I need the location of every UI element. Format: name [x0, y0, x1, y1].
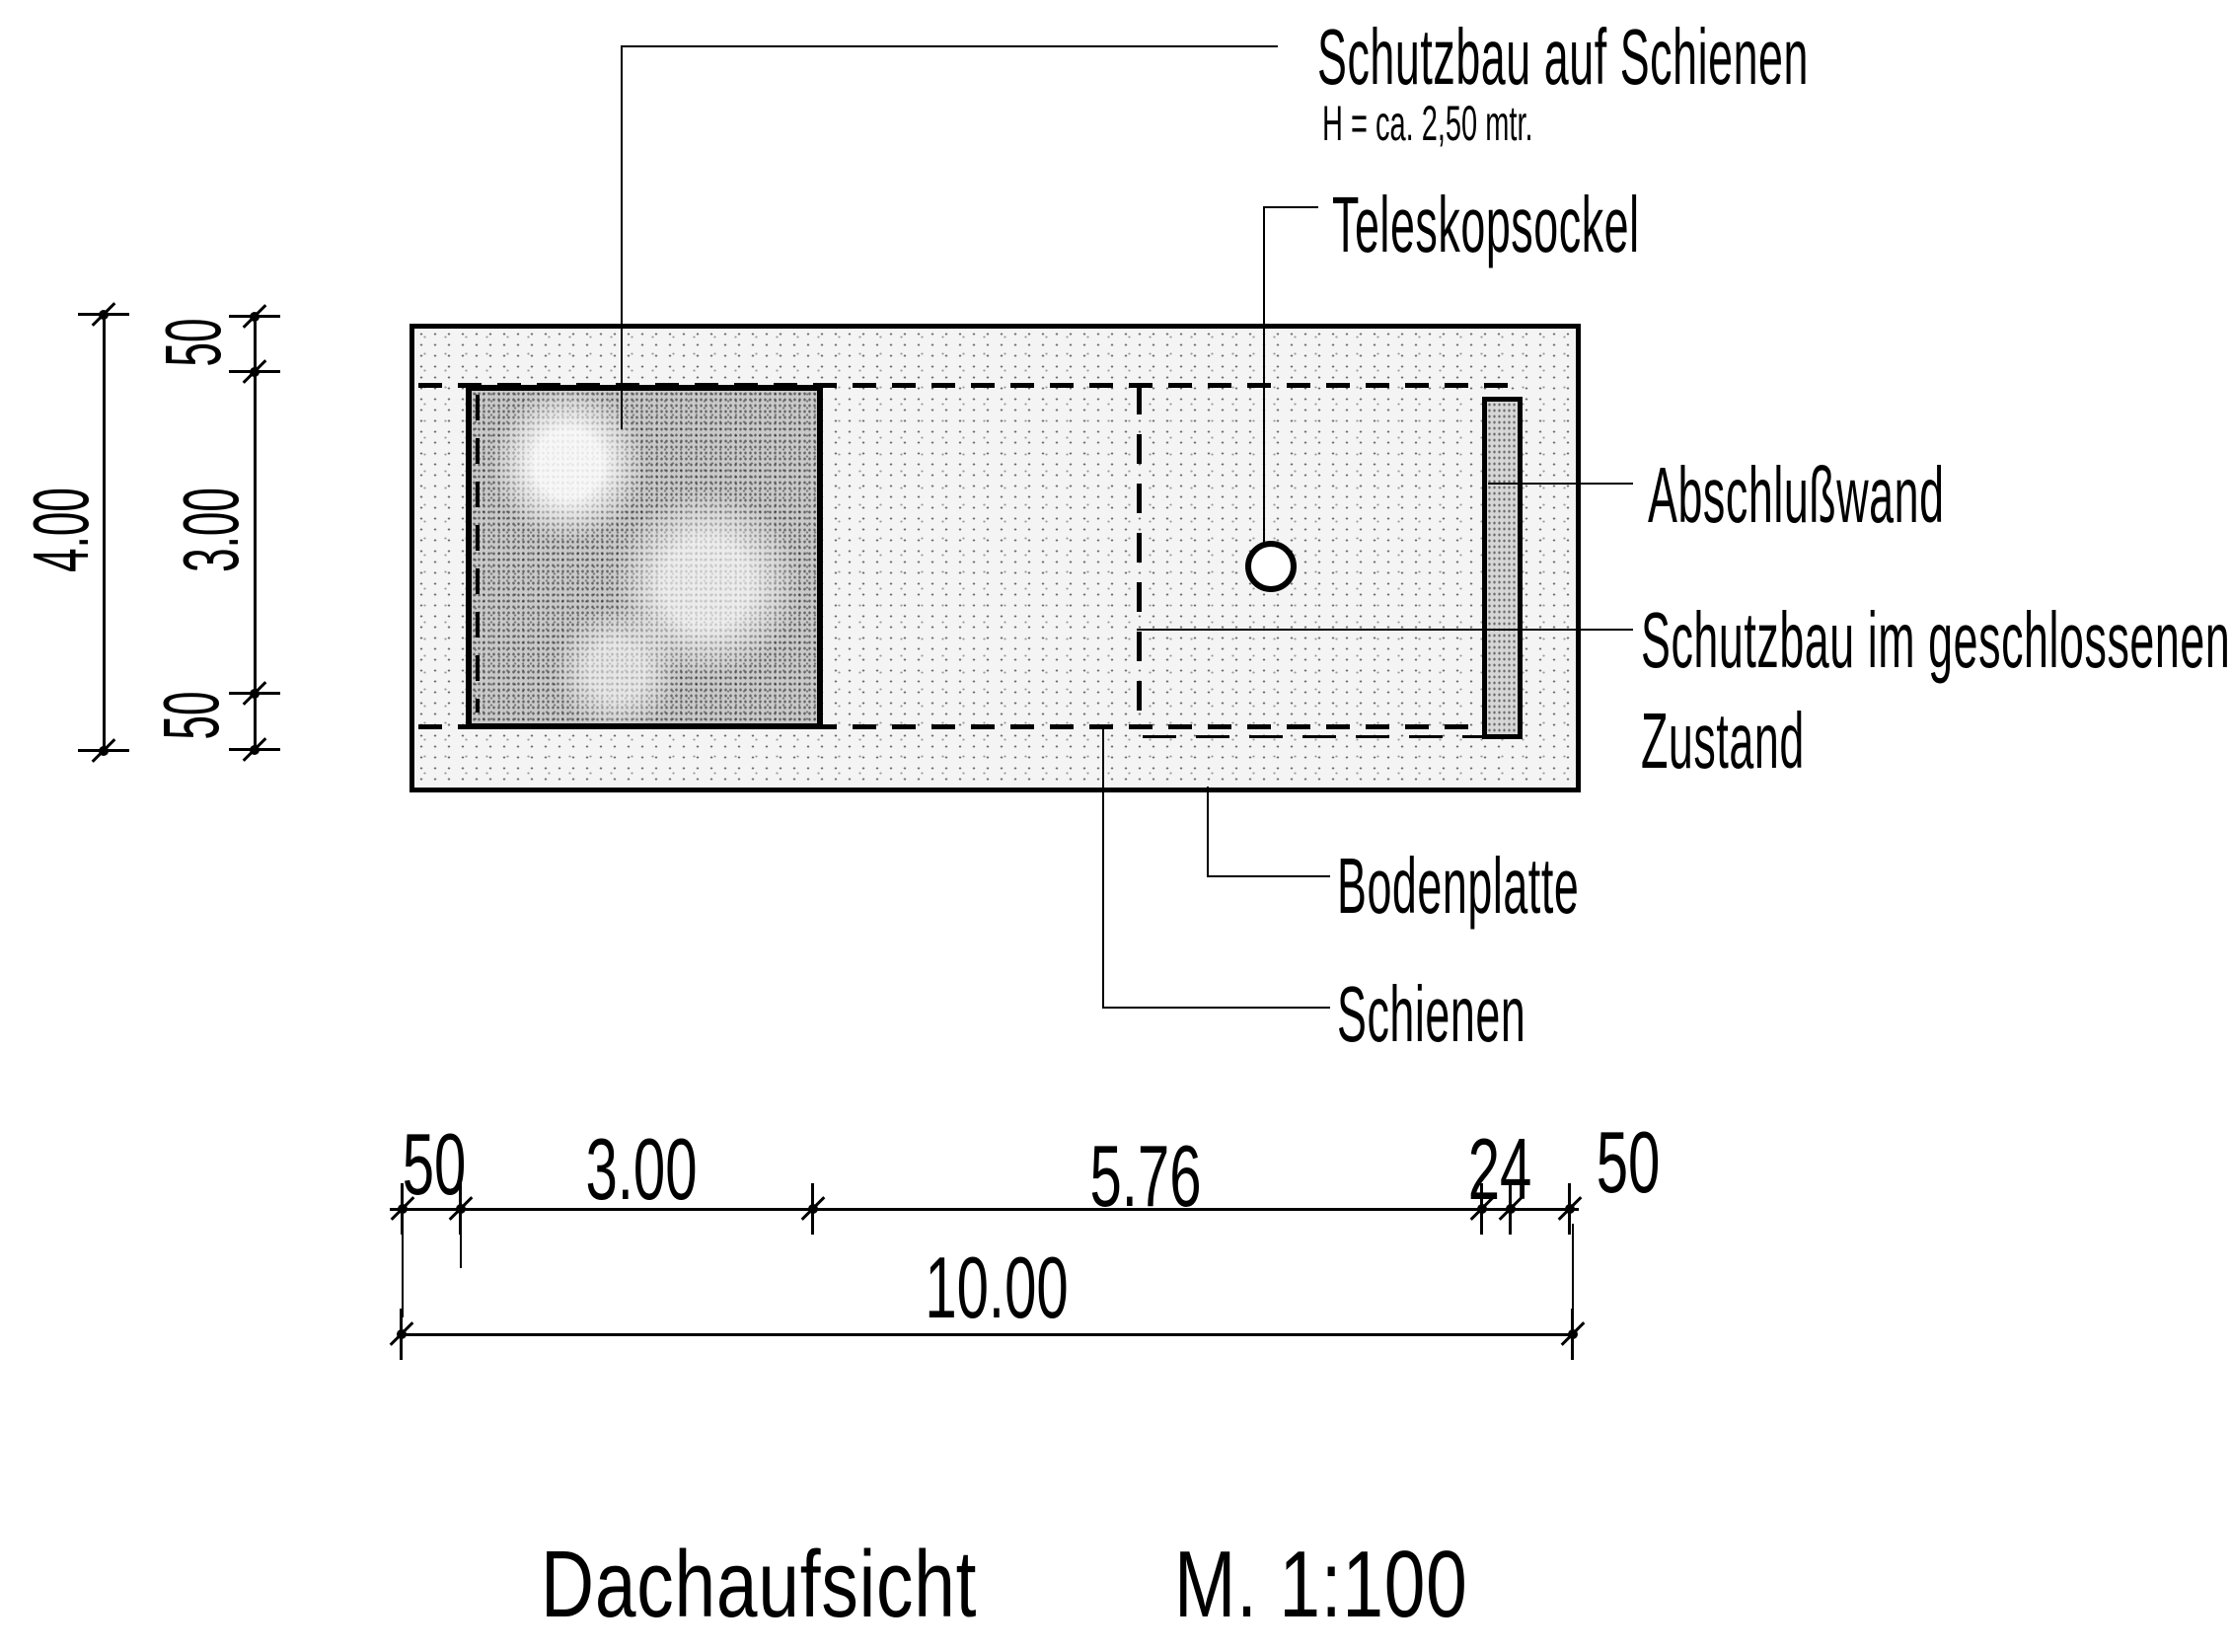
dim-value-horizontal-seg4: 24 — [1468, 1126, 1532, 1213]
leader-bodenplatte-horizontal — [1207, 875, 1330, 877]
closed-position-dashed-bottom — [1143, 735, 1522, 738]
leader-schutzbau-horizontal — [621, 45, 1278, 47]
leader-schienen-vertical — [1102, 726, 1104, 1009]
rail-line-bottom — [418, 724, 1522, 729]
dim-value-vertical-seg1: 50 — [154, 319, 233, 367]
teleskopsockel-circle — [1245, 541, 1297, 592]
extension-line — [1572, 1224, 1574, 1322]
label-abschlusswand: Abschlußwand — [1648, 456, 1945, 535]
drawing-scale: M. 1:100 — [1174, 1538, 1468, 1632]
label-schutzbau-geschlossen-line1: Schutzbau im geschlossenen — [1641, 590, 2230, 691]
dim-value-vertical-seg2: 3.00 — [172, 488, 251, 572]
drawing-title: Dachaufsicht — [541, 1538, 977, 1632]
leader-abschlusswand — [1488, 483, 1633, 485]
leader-schienen-horizontal — [1102, 1007, 1330, 1009]
schutzbau-square — [466, 385, 823, 729]
label-height-note: H = ca. 2,50 mtr. — [1322, 99, 1533, 148]
dim-value-horizontal-seg2: 3.00 — [585, 1126, 697, 1213]
label-schutzbau-geschlossen: Schutzbau im geschlossenen Zustand — [1641, 590, 2230, 792]
closed-position-dashed-edge — [1137, 385, 1142, 730]
label-schienen: Schienen — [1337, 975, 1525, 1054]
abschlusswand-bar — [1482, 397, 1523, 739]
extension-line — [402, 1224, 404, 1317]
technical-drawing-canvas: Schutzbau auf Schienen H = ca. 2,50 mtr.… — [0, 0, 2231, 1652]
leader-schutzbau-vertical — [621, 46, 623, 429]
dim-value-vertical-seg3: 50 — [152, 692, 231, 740]
label-schutzbau-auf-schienen: Schutzbau auf Schienen — [1317, 18, 1809, 97]
rail-line-top — [418, 383, 1522, 388]
dim-value-horizontal-total: 10.00 — [925, 1244, 1068, 1331]
label-schutzbau-geschlossen-line2: Zustand — [1641, 691, 2230, 791]
dim-value-horizontal-seg1: 50 — [403, 1121, 467, 1208]
label-bodenplatte: Bodenplatte — [1337, 847, 1579, 926]
schutzbau-inner-dashed-edge — [476, 395, 480, 713]
leader-bodenplatte-vertical — [1207, 787, 1209, 877]
leader-teleskopsockel-vertical — [1263, 206, 1265, 547]
dim-value-horizontal-seg3: 5.76 — [1089, 1133, 1201, 1220]
label-teleskopsockel: Teleskopsockel — [1332, 186, 1640, 264]
leader-schutzbau-geschlossen — [1137, 629, 1633, 631]
leader-teleskopsockel-horizontal — [1263, 206, 1318, 208]
dim-value-vertical-total: 4.00 — [22, 488, 101, 572]
dim-chain-horizontal-segments-line — [390, 1208, 1579, 1211]
dim-value-horizontal-seg5: 50 — [1597, 1119, 1661, 1206]
